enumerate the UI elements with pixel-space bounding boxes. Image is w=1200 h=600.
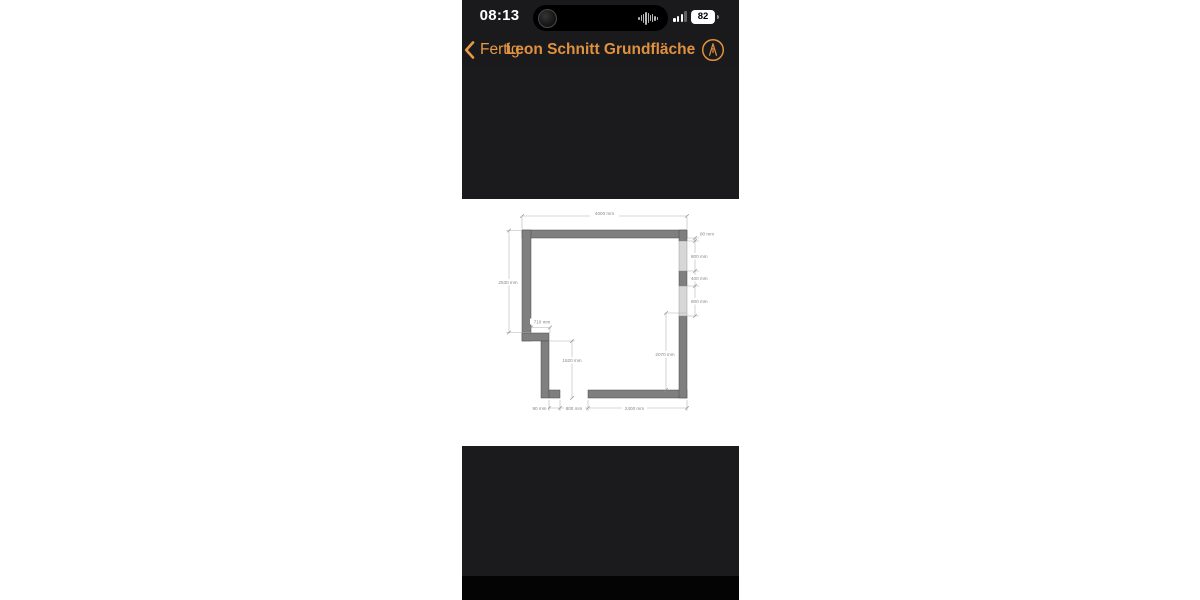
battery-indicator: 82 — [691, 10, 715, 24]
dim-bottom-wall: 2400 mm — [625, 406, 644, 411]
dim-right-window-upper: 800 mm — [691, 254, 708, 259]
document-page[interactable]: 4000 mm 2530 mm 710 mm 1620 mm 2070 mm 9… — [462, 199, 739, 446]
content-background-top — [462, 66, 739, 199]
dim-right-inner-height: 2070 mm — [655, 352, 674, 357]
content-background-bottom — [462, 446, 739, 576]
dim-left-height: 2530 mm — [498, 280, 517, 285]
page-title: Leon Schnitt Grundfläche — [462, 38, 739, 62]
dim-top-width: 4000 mm — [595, 211, 614, 216]
audio-waveform-icon — [638, 5, 658, 31]
album-art-icon — [538, 9, 557, 28]
dim-step-width: 710 mm — [534, 319, 551, 324]
status-bar: 08:13 82 — [462, 0, 739, 34]
dim-right-window-lower: 800 mm — [691, 299, 708, 304]
battery-nub — [717, 15, 719, 20]
floor-plan-walls — [522, 230, 687, 398]
clock-time: 08:13 — [472, 7, 527, 24]
dimension-lines — [506, 214, 699, 411]
dim-right-top: 80 mm — [700, 232, 714, 237]
dim-right-pier: 400 mm — [691, 276, 708, 281]
dim-bottom-stub: 90 mm — [532, 406, 546, 411]
cellular-signal-icon — [673, 11, 687, 22]
dynamic-island[interactable] — [533, 5, 668, 31]
window-upper — [679, 241, 687, 271]
bottom-bar — [462, 576, 739, 600]
floor-plan-drawing: 4000 mm 2530 mm 710 mm 1620 mm 2070 mm 9… — [462, 199, 739, 446]
window-lower — [679, 286, 687, 316]
dim-step-height: 1620 mm — [562, 358, 581, 363]
dim-bottom-opening: 800 mm — [566, 406, 583, 411]
markup-button[interactable] — [700, 37, 726, 63]
phone-screen: 08:13 82 Fertig Leon Schnitt Grundfl — [462, 0, 739, 600]
markup-pen-icon — [700, 37, 726, 63]
navigation-bar: Fertig Leon Schnitt Grundfläche — [462, 34, 739, 66]
